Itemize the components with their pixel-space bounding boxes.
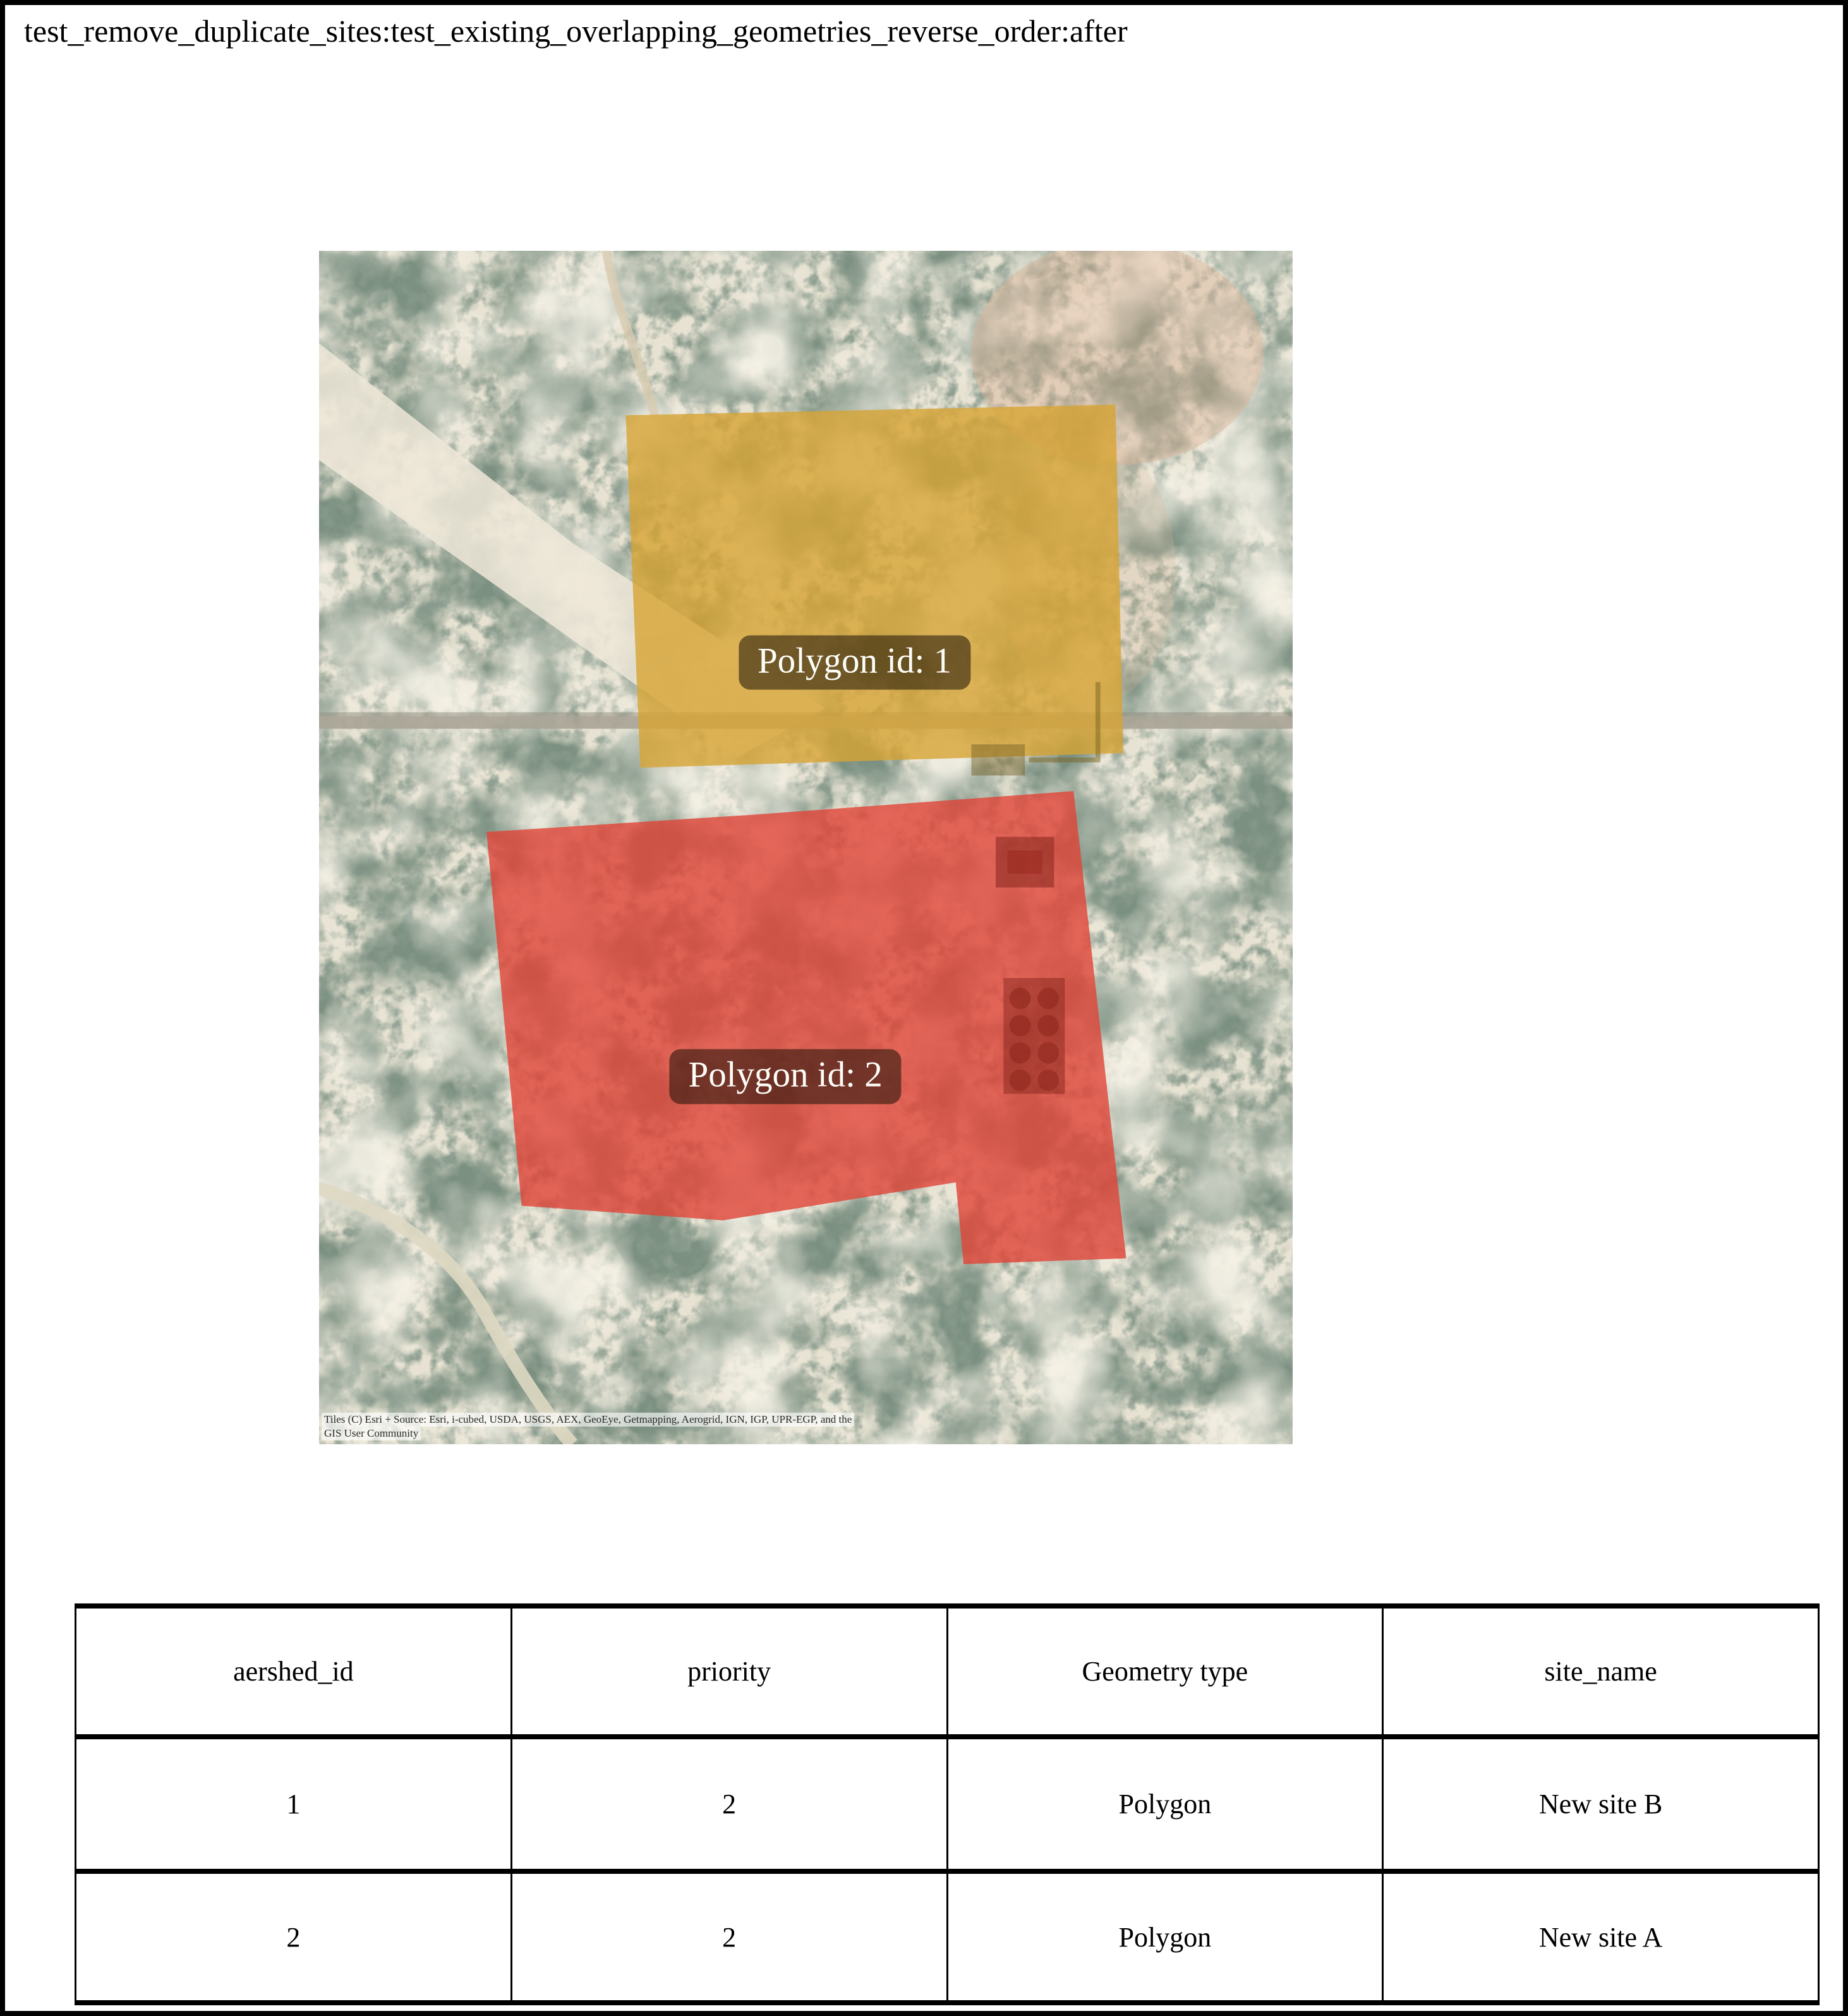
- industrial-pad-inner: [1007, 850, 1042, 874]
- table-row: 2 2 Polygon New site A: [76, 1871, 1819, 2003]
- polygon-2-label: Polygon id: 2: [670, 1049, 902, 1104]
- table-cell-geometry-type: Polygon: [947, 1871, 1383, 2003]
- table-cell-geometry-type: Polygon: [947, 1737, 1383, 1871]
- table-cell-site-name: New site A: [1383, 1871, 1819, 2003]
- polygon-1-overlay: [625, 404, 1123, 768]
- table-cell-aershed-id: 1: [76, 1737, 512, 1871]
- map-attribution-line1: Tiles (C) Esri + Source: Esri, i-cubed, …: [322, 1413, 854, 1427]
- satellite-basemap: [319, 251, 1293, 1444]
- tank: [1010, 1015, 1031, 1037]
- tank: [1037, 1015, 1059, 1037]
- small-facility: [971, 744, 1025, 775]
- tank: [1037, 987, 1059, 1009]
- column-header-priority: priority: [511, 1606, 947, 1737]
- figure-title: test_remove_duplicate_sites:test_existin…: [24, 13, 1128, 49]
- tank: [1010, 1070, 1031, 1091]
- figure-page: test_remove_duplicate_sites:test_existin…: [0, 0, 1848, 2016]
- map-attribution-line2: GIS User Community: [322, 1427, 421, 1440]
- map-attribution: Tiles (C) Esri + Source: Esri, i-cubed, …: [322, 1413, 854, 1440]
- tank: [1037, 1070, 1059, 1091]
- column-header-aershed-id: aershed_id: [76, 1606, 512, 1737]
- table-header-row: aershed_id priority Geometry type site_n…: [76, 1606, 1819, 1737]
- column-header-site-name: site_name: [1383, 1606, 1819, 1737]
- results-table: aershed_id priority Geometry type site_n…: [75, 1603, 1820, 2005]
- table-row: 1 2 Polygon New site B: [76, 1737, 1819, 1871]
- polygon-1-label: Polygon id: 1: [739, 635, 970, 690]
- table-cell-priority: 2: [511, 1871, 947, 2003]
- tank: [1010, 987, 1031, 1009]
- table-cell-priority: 2: [511, 1737, 947, 1871]
- tank: [1010, 1042, 1031, 1064]
- table-cell-site-name: New site B: [1383, 1737, 1819, 1871]
- tank: [1037, 1042, 1059, 1064]
- table-cell-aershed-id: 2: [76, 1871, 512, 2003]
- column-header-geometry-type: Geometry type: [947, 1606, 1383, 1737]
- map-panel: Polygon id: 1 Polygon id: 2 Tiles (C) Es…: [319, 251, 1293, 1444]
